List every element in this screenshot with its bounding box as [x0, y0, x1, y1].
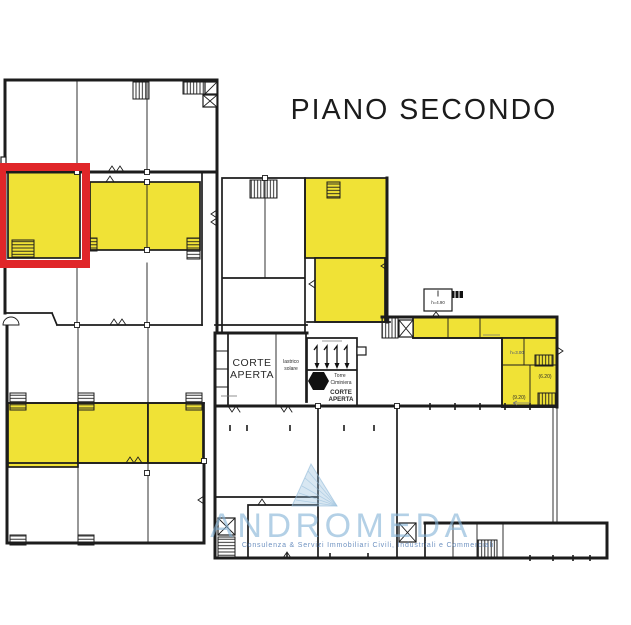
stairs-icon	[10, 535, 26, 545]
torre-ciminiera-label-line1: Torre	[334, 373, 346, 379]
stairs-icon	[10, 393, 26, 410]
height-300-label: h=3.00	[510, 350, 524, 355]
stairs-icon	[187, 238, 200, 259]
elevator-icon	[399, 320, 413, 337]
lastrico-solare-label-line2: solare	[284, 366, 298, 372]
torre-ciminiera-label-line2: Ciminiera	[330, 380, 351, 386]
elevator-icon	[203, 82, 217, 107]
floor-plan-page: CORTE APERTA lastrico solare Torre Cimin…	[0, 0, 631, 625]
floor-plan-drawing: CORTE APERTA lastrico solare Torre Cimin…	[0, 0, 631, 625]
room-highlight-2	[90, 182, 200, 250]
room-highlight-5	[148, 403, 203, 463]
corte-aperta-small-label-line1: CORTE	[330, 389, 352, 396]
stairs-icon	[186, 393, 202, 410]
stairs-icon	[250, 180, 277, 198]
watermark-name: ANDROMEDA	[210, 507, 472, 545]
page-title: PIANO SECONDO	[291, 94, 558, 126]
lastrico-solare-label-line1: lastrico	[283, 359, 299, 365]
stairs-icon	[12, 240, 34, 257]
stairs-icon	[538, 393, 557, 405]
stairs-icon	[78, 393, 94, 410]
corte-aperta-small-label-line2: APERTA	[329, 396, 355, 403]
room-highlight-3	[8, 403, 78, 467]
quota-620-label: (6.20)	[538, 374, 551, 380]
corte-aperta-label-line2: APERTA	[230, 369, 274, 381]
room-highlight-4	[78, 403, 148, 463]
room-highlight-6	[305, 178, 387, 258]
stairs-icon	[382, 318, 398, 338]
stairs-icon	[535, 355, 553, 366]
stairs-icon	[183, 82, 205, 94]
corte-aperta-label-line1: CORTE	[232, 357, 271, 369]
stairs-icon	[327, 182, 340, 198]
room-highlight-7	[315, 258, 385, 322]
stairs-icon	[78, 535, 94, 545]
quota-920-label: (9.20)	[512, 395, 525, 401]
height-490-label: h=4.90	[431, 300, 445, 305]
watermark-tagline: Consulenza & Servizi Immobiliari Civili,…	[242, 542, 494, 549]
stairs-icon	[133, 82, 149, 99]
